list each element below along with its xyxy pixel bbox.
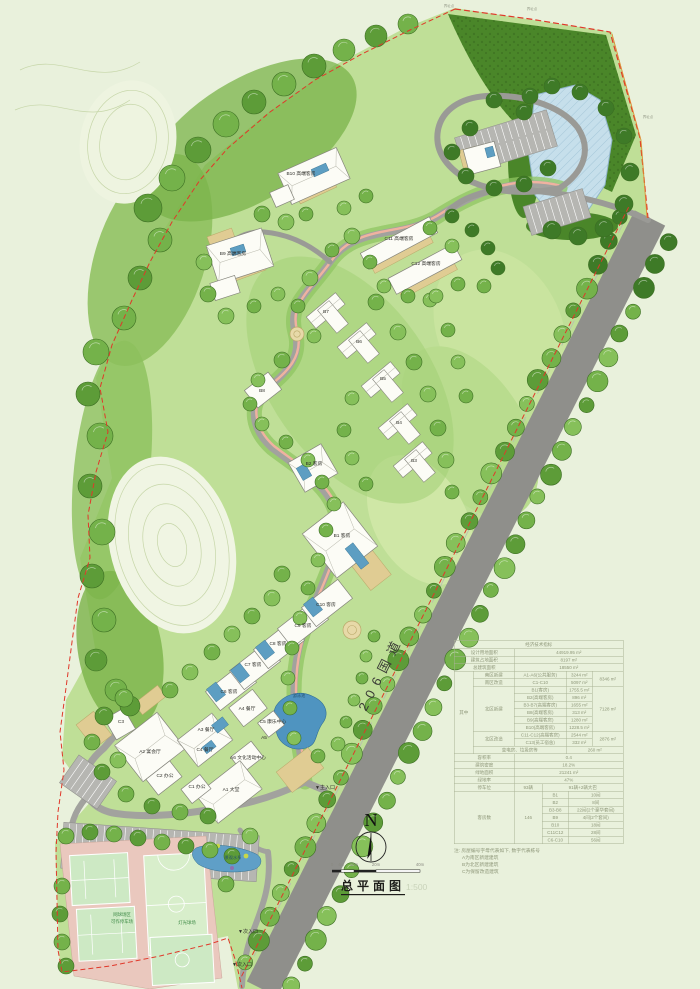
row-value: 18.2%	[514, 761, 623, 769]
plan-notes: 注: 房屋编号字母代表如下, 数字代表栋号 A为南区新建建筑 B为北区新建建筑 …	[454, 848, 624, 876]
tree-icon	[224, 626, 240, 642]
tree-icon	[434, 556, 455, 577]
tree-icon	[426, 583, 441, 598]
tree-icon	[541, 464, 562, 485]
tree-icon	[293, 611, 307, 625]
tree-icon	[83, 339, 109, 365]
tree-icon	[444, 144, 460, 160]
tree-icon	[159, 165, 185, 191]
tree-icon	[247, 299, 261, 313]
row-label: 绿地面积	[454, 769, 514, 777]
tree-icon	[333, 39, 355, 61]
label-water-feature: 景观水系	[225, 854, 242, 861]
tree-icon	[451, 277, 465, 291]
tree-icon	[243, 397, 257, 411]
row-label: 建筑密度	[454, 761, 514, 769]
row-label: 变电房、垃圾房等	[473, 746, 566, 754]
tree-icon	[84, 734, 100, 750]
rooms-total: 146	[514, 791, 542, 844]
tree-icon	[516, 176, 532, 192]
tree-icon	[76, 382, 100, 406]
tree-icon	[94, 764, 110, 780]
tree-icon	[616, 128, 632, 144]
row-value: 18550 m²	[514, 664, 623, 672]
indicators-table-main: 经济技术指标 设计用地面积44919.95 m² 建筑占地面积8197 m² 总…	[454, 640, 624, 784]
tree-icon	[390, 324, 406, 340]
tree-icon	[507, 419, 524, 436]
plan-scale: 1:500	[406, 882, 428, 892]
note-line: B为北区新建建筑	[462, 862, 624, 869]
tree-icon	[461, 513, 478, 530]
tree-icon	[202, 842, 218, 858]
tree-icon	[645, 254, 664, 273]
tree-icon	[218, 876, 234, 892]
tree-icon	[284, 861, 299, 876]
tree-icon	[115, 689, 133, 707]
tree-icon	[204, 644, 220, 660]
tree-icon	[430, 420, 446, 436]
tree-icon	[302, 270, 318, 286]
tree-icon	[295, 837, 316, 858]
title-underline	[341, 894, 405, 895]
tree-icon	[413, 722, 432, 741]
scale-tick-label: 20m	[372, 862, 381, 867]
subtotal: 7128 m²	[592, 686, 623, 731]
tree-icon	[255, 417, 269, 431]
tree-icon	[495, 442, 514, 461]
tree-icon	[182, 664, 198, 680]
tree-icon	[518, 512, 535, 529]
row-value: 8197 m²	[514, 656, 623, 664]
tree-icon	[359, 189, 373, 203]
tree-icon	[368, 630, 380, 642]
tree-icon	[311, 553, 325, 567]
tree-icon	[92, 608, 116, 632]
label-pool: 游泳池	[293, 692, 306, 699]
tree-icon	[345, 451, 359, 465]
tree-icon	[540, 160, 556, 176]
tree-icon	[462, 120, 478, 136]
tree-icon	[196, 254, 212, 270]
tree-icon	[360, 650, 372, 662]
tree-icon	[301, 581, 315, 595]
tree-icon	[483, 582, 498, 597]
among-label: 其中	[454, 671, 473, 754]
label-c8: C8 客房	[269, 640, 286, 647]
tree-icon	[595, 219, 613, 237]
label-c5: C5 康乐中心	[260, 718, 287, 725]
row-label: 停车位	[454, 784, 514, 792]
row-label: 北区新建	[473, 686, 514, 731]
label-a5: A5	[261, 735, 267, 741]
row-value: 0.4	[514, 754, 623, 762]
label-c11: C11 高端客房	[385, 235, 414, 242]
subtotal: 2876 m²	[592, 731, 623, 746]
tree-icon	[285, 641, 299, 655]
label-c4: C4 餐厅	[196, 746, 213, 753]
row-value: 44919.95 m²	[514, 649, 623, 657]
label-a2: A2 宴会厅	[139, 748, 161, 755]
tree-icon	[130, 830, 146, 846]
tree-icon	[445, 239, 459, 253]
tree-icon	[566, 303, 581, 318]
row-value: 3244 m²	[566, 671, 592, 679]
planting-accent	[244, 854, 249, 859]
table-title: 经济技术指标	[454, 640, 623, 649]
tree-icon	[291, 299, 305, 313]
tree-icon	[368, 294, 384, 310]
scale-tick-label: 4m	[338, 862, 344, 867]
tree-icon	[425, 699, 442, 716]
tree-icon	[148, 228, 172, 252]
tree-icon	[78, 474, 102, 498]
row-label: 容积率	[454, 754, 514, 762]
label-c3: C3	[118, 719, 124, 725]
tree-icon	[621, 163, 639, 181]
tree-icon	[588, 255, 607, 274]
tree-icon	[599, 348, 618, 367]
tree-icon	[106, 826, 122, 842]
tree-icon	[486, 92, 502, 108]
north-letter: N	[365, 810, 378, 830]
tree-icon	[486, 180, 502, 196]
label-b7: B7	[323, 309, 329, 315]
tree-icon	[458, 168, 474, 184]
label-boundary-pt-2: 界址点	[527, 6, 538, 11]
indicators-table-rooms: 停车位93辆91辆+2辆大巴 客房数 146 B110间 B28间 B3-B82…	[454, 784, 624, 845]
tree-icon	[118, 786, 134, 802]
tree-icon	[154, 834, 170, 850]
label-b4: B4	[396, 420, 402, 426]
label-courts-note-2: 可作停车场	[111, 918, 134, 925]
row-label: 南区改造	[473, 679, 514, 687]
row-value: 21241 m²	[514, 769, 623, 777]
tree-icon	[185, 137, 211, 163]
row-label: 北区改造	[473, 731, 514, 746]
label-boundary-pt-1: 界址点	[444, 3, 455, 8]
tree-icon	[340, 716, 352, 728]
label-c10: C10 客房	[316, 601, 336, 608]
label-c7: C7 客房	[244, 661, 261, 668]
tree-icon	[251, 373, 265, 387]
label-a4: A4 餐厅	[239, 705, 256, 712]
tree-icon	[82, 824, 98, 840]
tree-icon	[128, 266, 152, 290]
tree-icon	[58, 828, 74, 844]
tree-icon	[242, 90, 266, 114]
tree-icon	[579, 398, 594, 413]
label-b6: B6	[356, 339, 362, 345]
row-label: 客房数	[454, 791, 514, 844]
tree-icon	[459, 389, 473, 403]
tree-icon	[477, 279, 491, 293]
tree-icon	[333, 770, 348, 785]
tree-icon	[406, 354, 422, 370]
tree-icon	[85, 649, 107, 671]
note-line: C为保留改造建筑	[462, 869, 624, 876]
tree-icon	[274, 566, 290, 582]
tree-icon	[611, 325, 628, 342]
subtotal: 8346 m²	[592, 671, 623, 686]
tree-icon	[213, 111, 239, 137]
tree-icon	[451, 355, 465, 369]
tree-icon	[272, 72, 296, 96]
row-item: C1-C10	[514, 679, 566, 687]
tree-icon	[271, 287, 285, 301]
tree-icon	[572, 84, 588, 100]
plan-title-block: 总平面图 1:500	[341, 878, 428, 895]
plan-title: 总平面图	[341, 878, 405, 893]
tree-icon	[633, 277, 654, 298]
label-b1: B1 客房	[334, 532, 351, 539]
tree-icon	[302, 54, 326, 78]
tree-icon	[378, 792, 395, 809]
label-c2: C2 办公	[156, 772, 173, 779]
tree-icon	[54, 934, 70, 950]
tree-icon	[144, 798, 160, 814]
label-b3: B3	[411, 458, 417, 464]
tree-icon	[471, 605, 488, 622]
tree-icon	[315, 475, 329, 489]
label-b2: B2 客房	[306, 460, 323, 467]
label-a1: A1 大堂	[223, 786, 240, 793]
tree-icon	[626, 304, 641, 319]
tree-icon	[359, 477, 373, 491]
tree-icon	[218, 308, 234, 324]
label-c6: C6 客房	[220, 688, 237, 695]
note-line: A为南区新建建筑	[462, 855, 624, 862]
indicators-panel: 经济技术指标 设计用地面积44919.95 m² 建筑占地面积8197 m² 总…	[454, 640, 624, 876]
tree-icon	[414, 606, 431, 623]
tree-icon	[87, 423, 113, 449]
label-c9: C9 客房	[294, 622, 311, 629]
tree-icon	[660, 234, 677, 251]
lit-court	[150, 934, 214, 985]
tree-icon	[319, 523, 333, 537]
tree-icon	[401, 289, 415, 303]
label-a6: A6 文化活动中心	[230, 754, 266, 761]
tree-icon	[506, 535, 525, 554]
tree-icon	[278, 214, 294, 230]
tree-icon	[564, 418, 581, 435]
row-value: 260 m²	[566, 746, 623, 754]
tree-icon	[344, 228, 360, 244]
tree-icon	[331, 737, 345, 751]
tree-icon	[307, 814, 326, 833]
tree-icon	[446, 533, 465, 552]
tree-icon	[542, 349, 561, 368]
tree-icon	[254, 206, 270, 222]
scale-tick-label: 40m	[416, 862, 425, 867]
row-label: 总建筑面积	[454, 664, 514, 672]
tree-icon	[134, 194, 162, 222]
tree-icon	[244, 608, 260, 624]
tree-icon	[337, 423, 351, 437]
master-plan-canvas: B10 高端客房B9 高端客房C11 高端客房C12 高端客房B7B6B5B4B…	[0, 0, 700, 989]
tree-icon	[283, 701, 297, 715]
tree-icon	[200, 808, 216, 824]
note-title: 注: 房屋编号字母代表如下, 数字代表栋号	[454, 848, 624, 855]
tree-icon	[356, 672, 368, 684]
label-secondary-entrance-2: ▼次入口	[232, 961, 252, 968]
tree-icon	[264, 590, 280, 606]
tree-icon	[465, 223, 479, 237]
row-item: A1-A6(公共服务)	[514, 671, 566, 679]
tree-icon	[494, 558, 515, 579]
label-a3: A3 餐厅	[198, 726, 215, 733]
tree-icon	[516, 104, 532, 120]
tree-icon	[95, 707, 113, 725]
scale-tick-label: 10m	[350, 862, 359, 867]
tree-icon	[438, 452, 454, 468]
tree-icon	[544, 78, 560, 94]
tree-icon	[299, 207, 313, 221]
tree-icon	[377, 279, 391, 293]
tree-icon	[80, 564, 104, 588]
label-courts-note-1: 网球场区	[113, 911, 131, 918]
label-b9: B9 高端客房	[220, 250, 247, 257]
tree-icon	[287, 731, 301, 745]
tree-icon	[110, 752, 126, 768]
tree-icon	[89, 519, 115, 545]
tree-icon	[390, 769, 405, 784]
tree-icon	[445, 209, 459, 223]
row-label: 设计用地面积	[454, 649, 514, 657]
tree-icon	[552, 441, 571, 460]
tree-icon	[577, 278, 598, 299]
label-c1: C1 办公	[188, 783, 205, 790]
row-label: 建筑占地面积	[454, 656, 514, 664]
tree-icon	[178, 838, 194, 854]
tree-icon	[587, 371, 608, 392]
tree-icon	[491, 261, 505, 275]
label-lit-court: 灯光球场	[178, 919, 196, 926]
tree-icon	[325, 243, 339, 257]
tree-icon	[554, 326, 571, 343]
label-b10: B10 高端客房	[286, 170, 315, 177]
tree-icon	[522, 88, 538, 104]
tree-icon	[297, 956, 312, 971]
tree-icon	[363, 255, 377, 269]
tree-icon	[260, 907, 279, 926]
tree-icon	[420, 386, 436, 402]
tree-icon	[52, 906, 68, 922]
tree-icon	[172, 804, 188, 820]
tree-icon	[423, 221, 437, 235]
tree-icon	[200, 286, 216, 302]
tree-icon	[337, 201, 351, 215]
tree-icon	[530, 489, 545, 504]
row-label: 南区新建	[473, 671, 514, 679]
tree-icon	[242, 828, 258, 844]
tree-icon	[445, 485, 459, 499]
planting-accent	[230, 866, 234, 870]
tree-icon	[437, 676, 452, 691]
tree-icon	[481, 241, 495, 255]
label-main-entrance: ▼主入口	[315, 784, 335, 791]
tree-icon	[441, 323, 455, 337]
label-b8: B8	[259, 388, 265, 394]
tree-icon	[274, 352, 290, 368]
tree-icon	[398, 742, 419, 763]
tree-icon	[543, 221, 561, 239]
tree-icon	[305, 929, 326, 950]
tree-icon	[162, 682, 178, 698]
tree-icon	[311, 749, 325, 763]
tree-icon	[365, 25, 387, 47]
label-boundary-pt-3: 界址点	[643, 114, 654, 119]
label-secondary-entrance-1: ▼次入口	[238, 928, 258, 935]
label-b5: B5	[380, 376, 386, 382]
tree-icon	[345, 391, 359, 405]
row-value: 5097 m²	[566, 679, 592, 687]
tree-icon	[279, 435, 293, 449]
tree-icon	[615, 195, 633, 213]
tree-icon	[429, 289, 443, 303]
tree-icon	[327, 497, 341, 511]
tree-icon	[281, 671, 295, 685]
tree-icon	[307, 329, 321, 343]
tree-icon	[598, 100, 614, 116]
tree-icon	[569, 227, 587, 245]
label-c12: C12 高端客房	[411, 260, 441, 267]
tree-icon	[317, 906, 336, 925]
